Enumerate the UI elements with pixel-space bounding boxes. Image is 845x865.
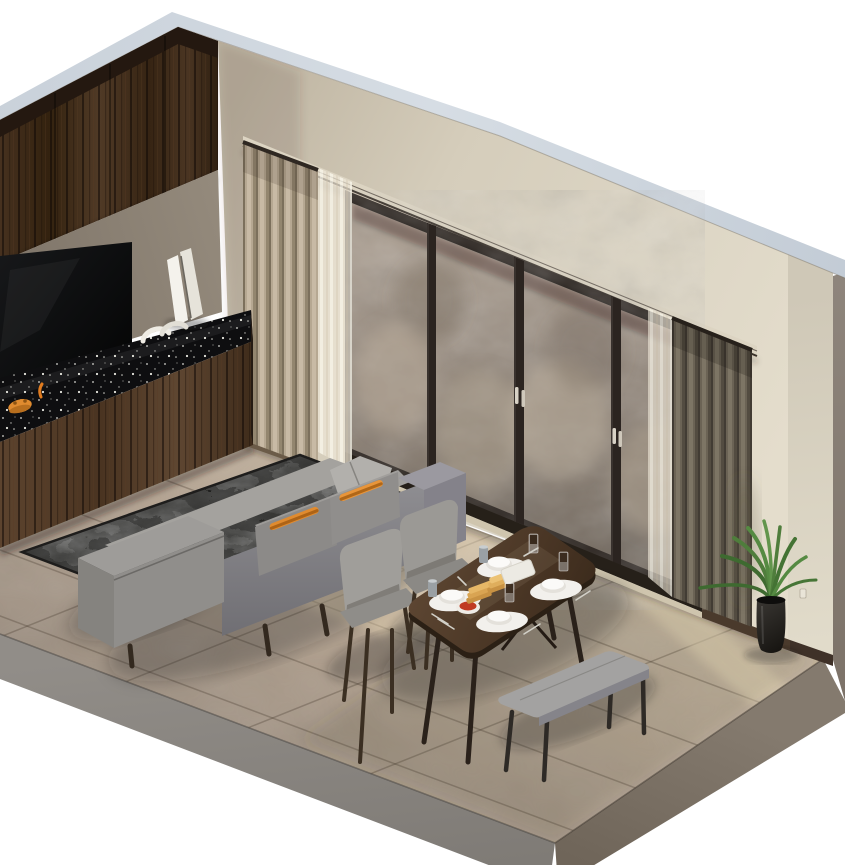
- curtain-left: Beige pleated drape: [243, 142, 318, 468]
- drink-glass: [559, 552, 568, 571]
- isometric-room-svg: Isometric 3D render of a modern living-d…: [0, 0, 845, 865]
- controller-stick: [13, 401, 17, 405]
- sheer-curtain-right: White sheer curtain (right): [648, 308, 672, 597]
- controller-stick: [23, 399, 27, 403]
- steel-cup: [479, 545, 488, 563]
- right-wall-edge: [833, 272, 845, 701]
- outlet: Wall outlet: [800, 589, 806, 598]
- sheer-curtain-left: White sheer curtain (left): [318, 168, 352, 470]
- steel-cup: [428, 579, 437, 597]
- plant-pot: [757, 596, 786, 653]
- drink-glass: [505, 583, 514, 602]
- render-canvas: Isometric 3D render of a modern living-d…: [0, 0, 845, 865]
- right-wall: [788, 254, 833, 658]
